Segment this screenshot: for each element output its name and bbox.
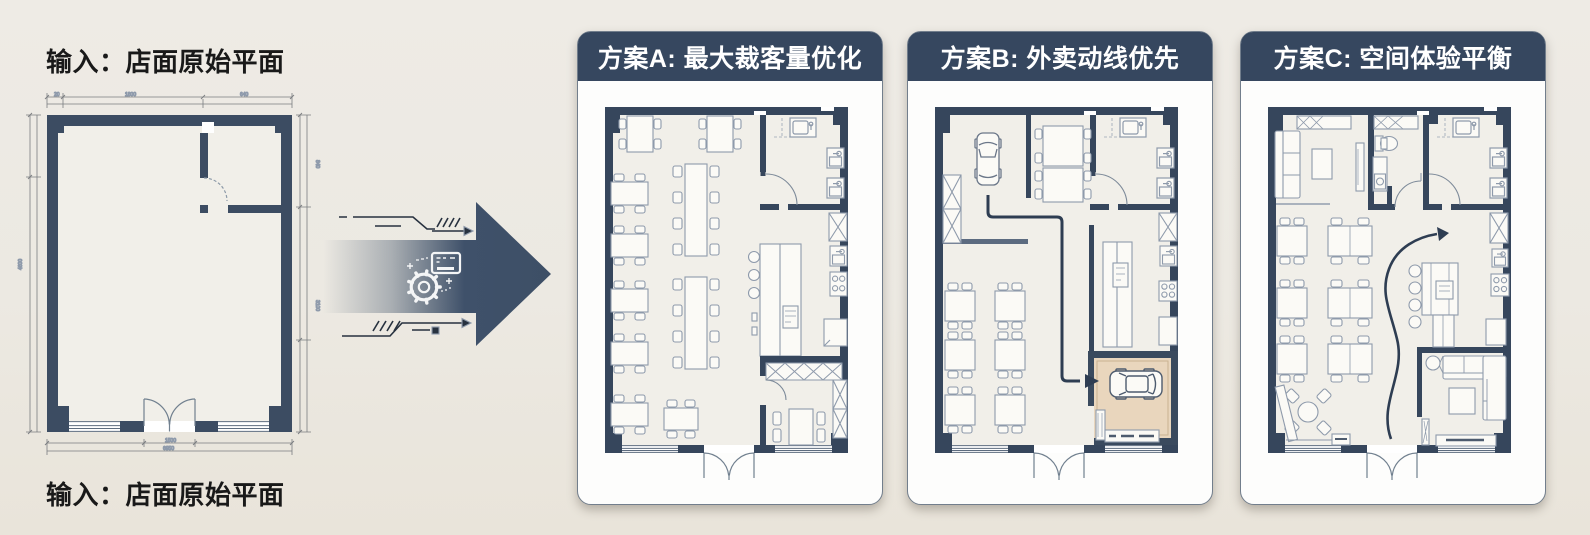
svg-text:20: 20 bbox=[54, 92, 60, 98]
svg-text:840: 840 bbox=[314, 160, 320, 169]
svg-text:640: 640 bbox=[240, 92, 249, 98]
svg-text:4600: 4600 bbox=[18, 259, 24, 270]
svg-text:3100: 3100 bbox=[314, 300, 320, 311]
svg-text:1800: 1800 bbox=[125, 92, 136, 98]
svg-text:6950: 6950 bbox=[163, 446, 174, 452]
svg-text:1500: 1500 bbox=[165, 438, 176, 444]
